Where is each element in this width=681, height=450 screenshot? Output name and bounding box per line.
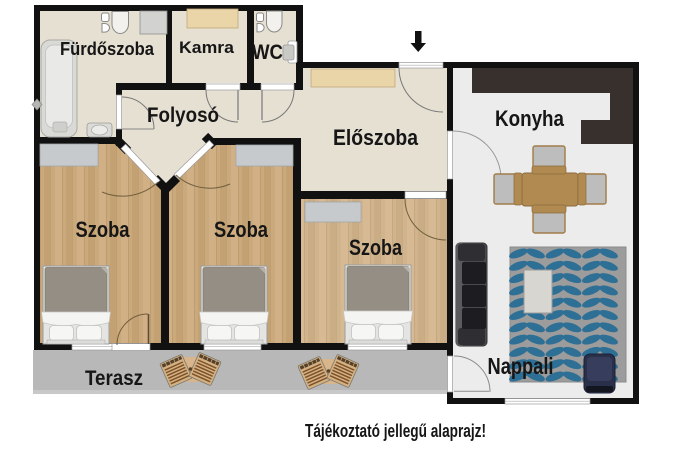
svg-text:Kamra: Kamra [179,38,235,57]
svg-text:Szoba: Szoba [214,217,269,242]
svg-text:Terasz: Terasz [85,366,143,390]
svg-text:Folyosó: Folyosó [147,104,219,127]
svg-text:Fürdőszoba: Fürdőszoba [60,39,155,59]
svg-text:Nappali: Nappali [488,353,554,379]
svg-text:Előszoba: Előszoba [333,125,419,150]
svg-text:Konyha: Konyha [495,106,565,131]
svg-text:WC: WC [252,41,283,64]
svg-text:Szoba: Szoba [349,235,403,260]
svg-text:Szoba: Szoba [76,217,131,242]
svg-text:Tájékoztató jellegű alaprajz!: Tájékoztató jellegű alaprajz! [305,421,486,441]
